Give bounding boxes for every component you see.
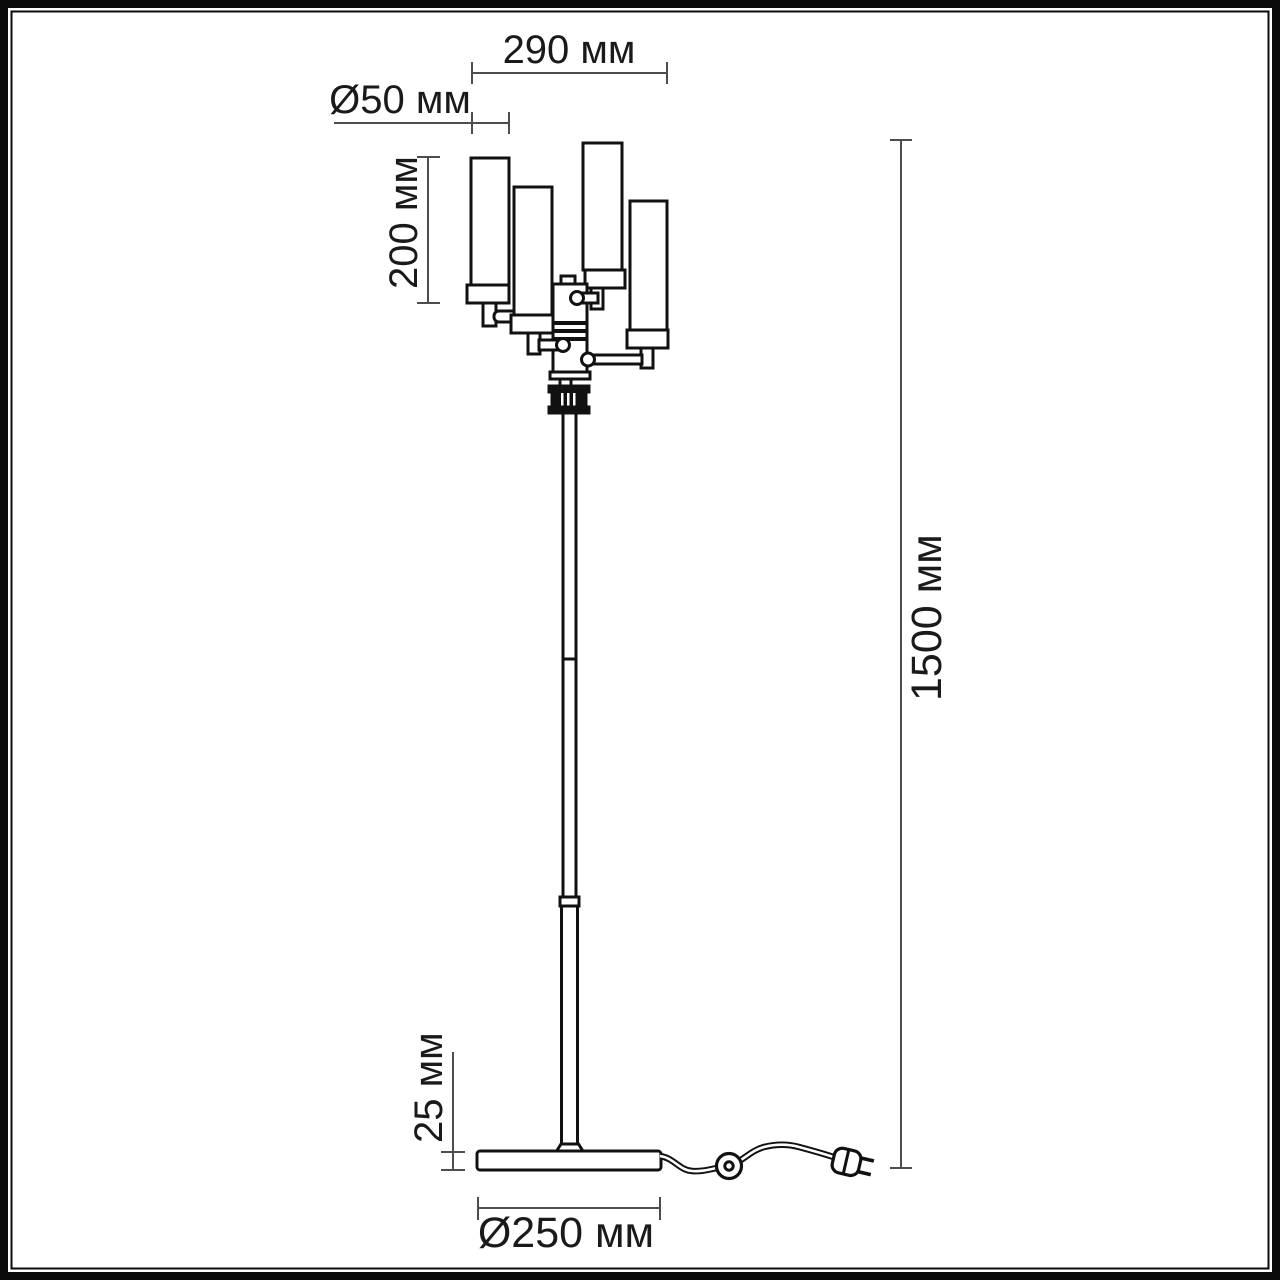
shade-1-collar (467, 285, 509, 303)
shade-2-arm-ball (557, 339, 570, 352)
power-cord-assembly (660, 1145, 875, 1180)
shade-1-body (471, 158, 509, 285)
connector-rib (567, 393, 570, 406)
inline-switch-button (725, 1162, 733, 1170)
shade-3 (583, 143, 625, 309)
lamp-head (467, 143, 668, 413)
shade-2 (511, 187, 553, 354)
dim-total-height: 1500 мм (890, 140, 951, 1168)
hub-stripe (554, 329, 586, 333)
shade-4-arm (588, 355, 642, 364)
shade-4-body (630, 201, 667, 330)
dim-total-height-label: 1500 мм (903, 534, 951, 701)
frame (4, 4, 1276, 1276)
dim-head-width-label: 290 мм (503, 28, 636, 72)
shade-3-body (583, 143, 622, 270)
pole-lower (562, 906, 578, 1146)
shade-3-arm-ball (571, 292, 584, 305)
shade-3-collar (585, 270, 625, 288)
outer-border (4, 4, 1276, 1276)
hub-stripe (554, 321, 586, 325)
lamp-pole (477, 413, 661, 1170)
shade-2-body (514, 187, 552, 315)
dim-shade-diameter-label: Ø50 мм (329, 78, 471, 122)
stem-connector (549, 386, 589, 413)
shade-4-collar (627, 330, 668, 348)
shade-4 (627, 201, 668, 368)
connector-rib (561, 393, 564, 406)
dim-base-thickness: 25 мм (407, 1032, 465, 1170)
dim-base-diameter-label: Ø250 мм (478, 1209, 654, 1257)
shade-2-collar (511, 315, 553, 333)
pole-middle (563, 659, 576, 897)
dim-shade-height: 200 мм (382, 156, 440, 303)
dim-head-width: 290 мм (472, 28, 667, 84)
power-plug (831, 1147, 876, 1180)
pole-upper (563, 413, 576, 659)
lamp-base (477, 1151, 661, 1170)
shade-4-arm-ball (582, 353, 595, 366)
floor-lamp-drawing: 290 мм Ø50 мм 200 мм 1500 мм (0, 0, 1280, 1280)
shade-1 (467, 158, 520, 326)
dim-shade-diameter: Ø50 мм (329, 78, 509, 134)
dim-base-thickness-label: 25 мм (407, 1032, 451, 1143)
dim-base-diameter: Ø250 мм (478, 1197, 660, 1257)
drawing-canvas: 290 мм Ø50 мм 200 мм 1500 мм (0, 0, 1280, 1280)
dim-shade-height-label: 200 мм (382, 156, 426, 289)
connector-rib (573, 393, 576, 406)
